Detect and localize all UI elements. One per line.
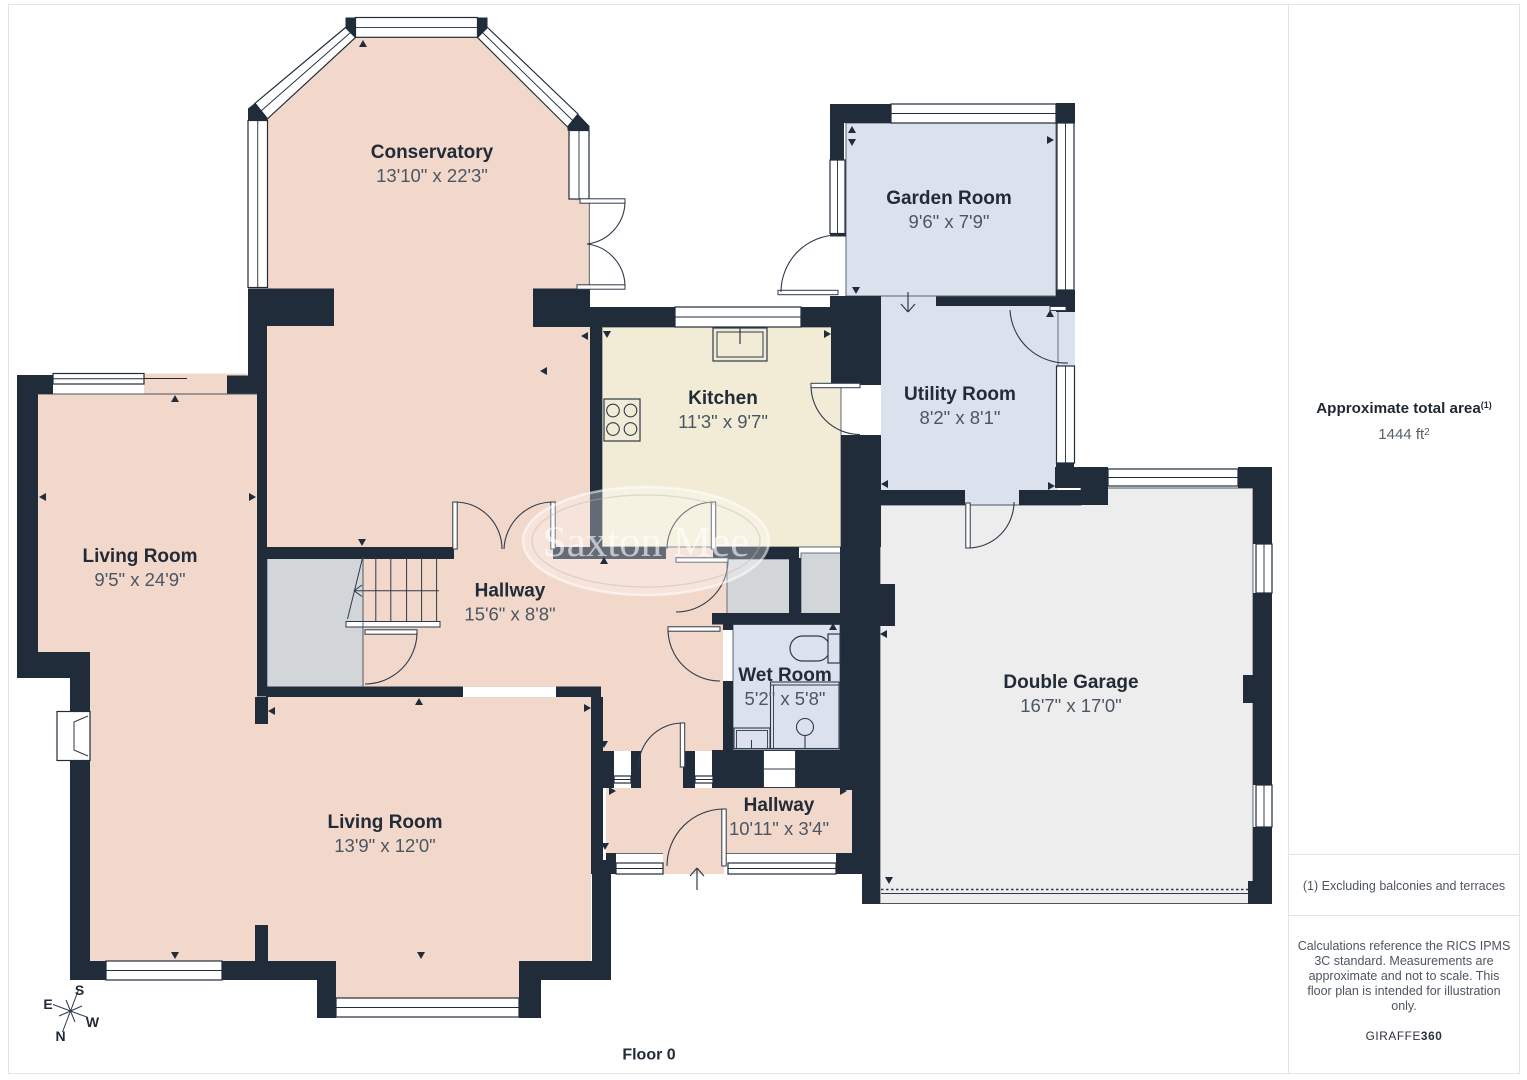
svg-text:13'9" x 12'0": 13'9" x 12'0" (334, 835, 435, 856)
svg-text:E: E (43, 996, 52, 1012)
svg-text:1444 ft2: 1444 ft2 (1378, 426, 1430, 443)
svg-text:Double Garage: Double Garage (1003, 672, 1138, 693)
svg-text:16'7" x 17'0": 16'7" x 17'0" (1020, 695, 1121, 716)
svg-text:3C standard. Measurements are: 3C standard. Measurements are (1314, 954, 1493, 968)
svg-text:only.: only. (1391, 999, 1416, 1013)
svg-text:Kitchen: Kitchen (688, 388, 758, 409)
svg-text:floor plan is intended for ill: floor plan is intended for illustration (1307, 984, 1500, 998)
svg-text:9'5" x 24'9": 9'5" x 24'9" (94, 569, 185, 590)
svg-text:8'2" x 8'1": 8'2" x 8'1" (920, 407, 1001, 428)
svg-text:11'3" x 9'7": 11'3" x 9'7" (678, 411, 768, 432)
svg-text:Saxton Mee: Saxton Mee (543, 519, 750, 566)
svg-text:13'10" x 22'3": 13'10" x 22'3" (376, 165, 488, 186)
svg-text:Utility Room: Utility Room (904, 384, 1016, 405)
svg-text:Wet Room: Wet Room (738, 665, 832, 686)
svg-text:9'6" x 7'9": 9'6" x 7'9" (909, 211, 990, 232)
svg-text:5'2" x 5'8": 5'2" x 5'8" (745, 688, 826, 709)
svg-text:N: N (55, 1028, 65, 1044)
svg-text:Hallway: Hallway (475, 581, 546, 602)
svg-text:Floor 0: Floor 0 (622, 1047, 675, 1064)
svg-text:approximate and not to scale.: approximate and not to scale. This (1309, 969, 1500, 983)
svg-text:Hallway: Hallway (744, 795, 815, 816)
svg-text:Living Room: Living Room (82, 546, 197, 567)
svg-text:Living Room: Living Room (327, 812, 442, 833)
svg-text:(1) Excluding balconies and te: (1) Excluding balconies and terraces (1303, 879, 1505, 893)
svg-text:Approximate total area(1): Approximate total area(1) (1316, 400, 1492, 417)
svg-text:Conservatory: Conservatory (371, 142, 494, 163)
svg-text:W: W (86, 1014, 100, 1030)
svg-text:Calculations reference the RIC: Calculations reference the RICS IPMS (1298, 939, 1511, 953)
svg-text:GIRAFFE360: GIRAFFE360 (1366, 1029, 1443, 1043)
svg-text:15'6" x 8'8": 15'6" x 8'8" (464, 604, 555, 625)
svg-text:Garden Room: Garden Room (886, 188, 1012, 209)
svg-text:10'11" x 3'4": 10'11" x 3'4" (729, 818, 829, 839)
svg-text:S: S (75, 982, 84, 998)
